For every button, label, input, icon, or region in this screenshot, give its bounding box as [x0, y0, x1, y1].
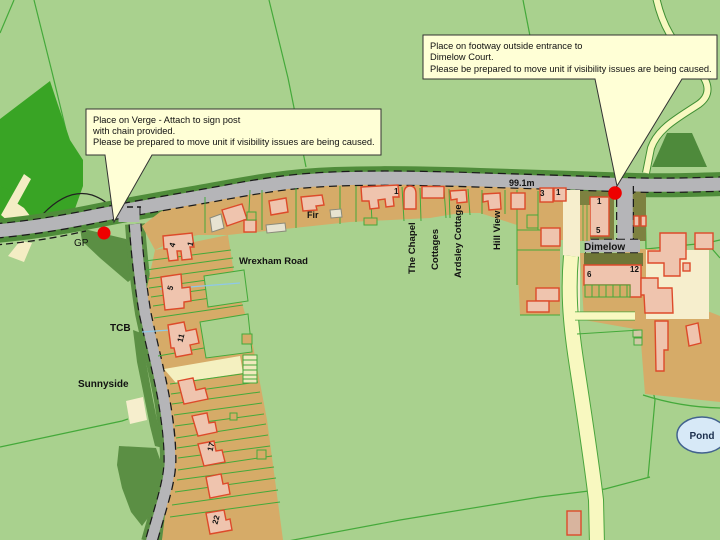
svg-text:Cottages: Cottages [430, 229, 441, 270]
svg-text:99.1m: 99.1m [509, 178, 535, 188]
svg-text:5: 5 [596, 226, 601, 235]
svg-text:Pond: Pond [690, 431, 715, 442]
svg-text:Dimelow: Dimelow [584, 242, 625, 253]
svg-text:TCB: TCB [110, 323, 131, 334]
svg-text:Dimelow Court.: Dimelow Court. [430, 52, 494, 62]
svg-text:Ardsley Cottage: Ardsley Cottage [453, 204, 464, 278]
svg-text:with chain provided.: with chain provided. [92, 126, 175, 136]
svg-text:Fir: Fir [307, 210, 319, 220]
svg-text:Hill View: Hill View [492, 210, 503, 250]
svg-text:Wrexham Road: Wrexham Road [239, 256, 308, 267]
svg-text:6: 6 [587, 270, 592, 279]
svg-text:GP: GP [74, 238, 89, 249]
svg-text:12: 12 [630, 265, 639, 274]
svg-text:Please be prepared to move uni: Please be prepared to move unit if visib… [430, 64, 712, 74]
svg-text:3: 3 [540, 189, 545, 198]
svg-text:1: 1 [394, 187, 399, 196]
svg-text:Sunnyside: Sunnyside [78, 379, 129, 390]
svg-text:The Chapel: The Chapel [407, 222, 418, 274]
svg-text:Place on footway outside entra: Place on footway outside entrance to [430, 41, 582, 51]
svg-text:Please be prepared to move uni: Please be prepared to move unit if visib… [93, 137, 375, 147]
svg-text:1: 1 [597, 197, 602, 206]
svg-text:1: 1 [556, 188, 561, 197]
svg-text:Place on Verge - Attach to sig: Place on Verge - Attach to sign post [93, 115, 241, 125]
